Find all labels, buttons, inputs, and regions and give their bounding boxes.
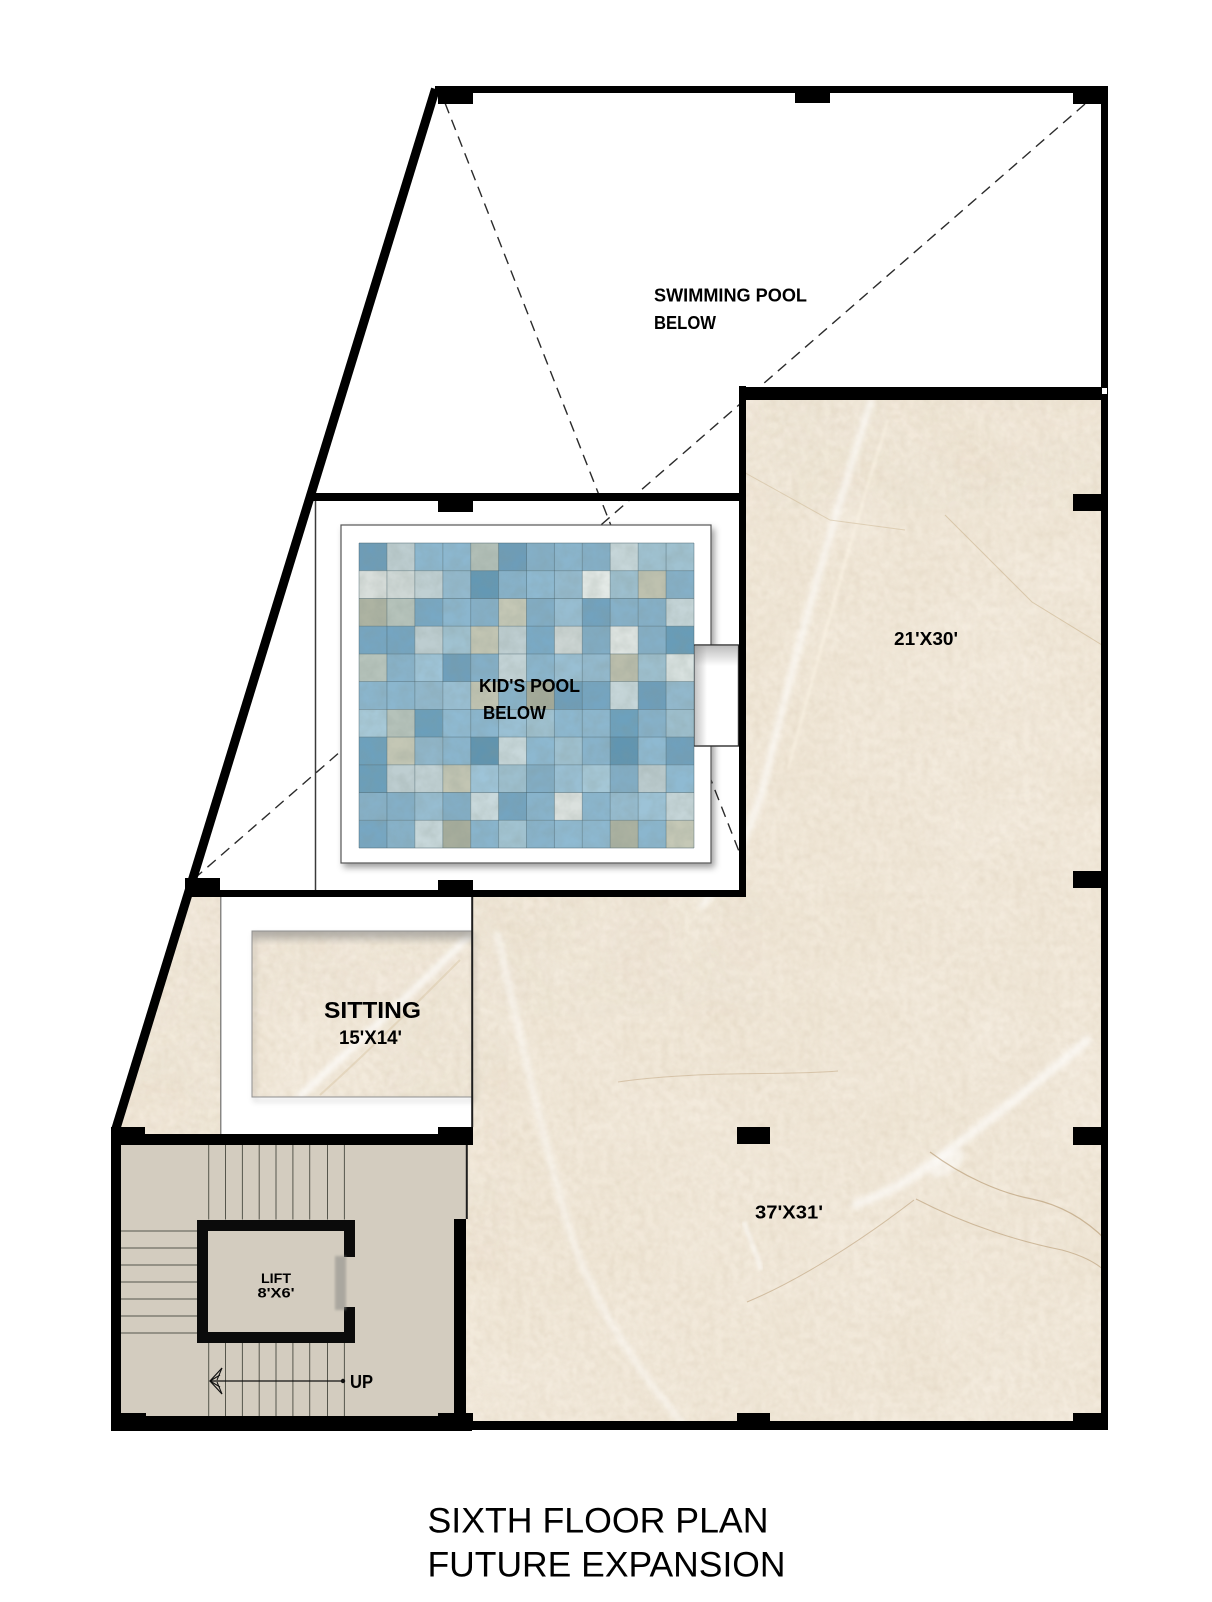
svg-text:SWIMMING POOL: SWIMMING POOL [654, 286, 807, 306]
svg-text:15'X14': 15'X14' [339, 1028, 402, 1049]
svg-text:BELOW: BELOW [654, 313, 716, 333]
svg-text:BELOW: BELOW [483, 703, 546, 723]
svg-text:UP: UP [350, 1372, 373, 1392]
svg-text:8'X6': 8'X6' [258, 1285, 295, 1301]
svg-text:21'X30': 21'X30' [894, 629, 958, 649]
svg-text:37'X31': 37'X31' [755, 1203, 823, 1223]
svg-text:FUTURE EXPANSION: FUTURE EXPANSION [428, 1546, 786, 1585]
svg-text:SITTING: SITTING [324, 997, 421, 1023]
svg-text:SIXTH FLOOR PLAN: SIXTH FLOOR PLAN [428, 1502, 769, 1541]
svg-text:KID'S POOL: KID'S POOL [479, 676, 580, 696]
